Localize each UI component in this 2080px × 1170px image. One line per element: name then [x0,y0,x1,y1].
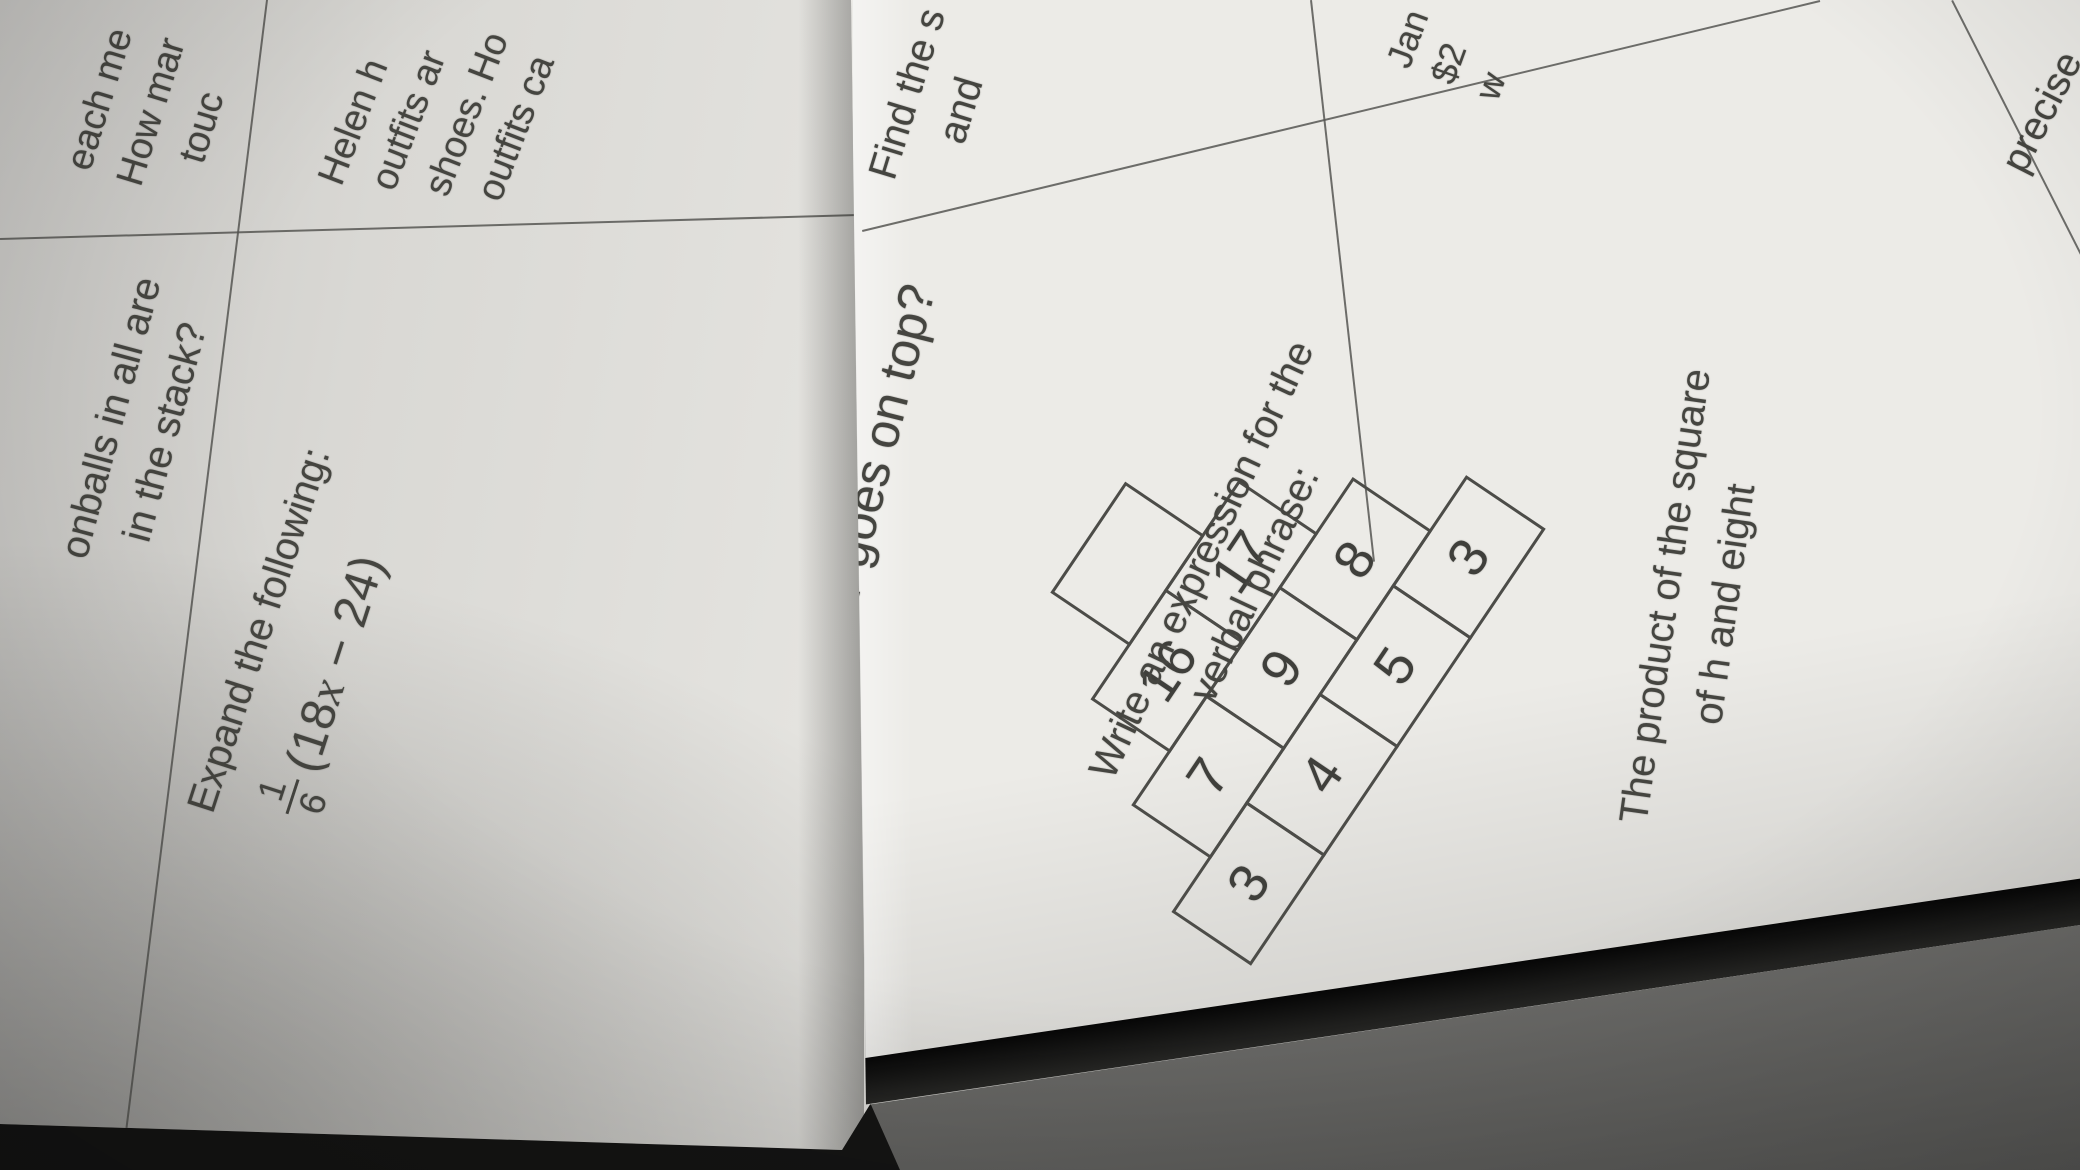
problem-stack-question: onballs in all are in the stack? [47,271,230,579]
problem-helen-fragment: Helen h outfits ar shoes. Ho outfits ca [307,0,570,248]
verbal-phrase-text: The product of the square of h and eight [1604,365,1787,835]
expression-suffix: − 24) [305,548,396,688]
fraction-denominator: 6 [289,782,337,825]
fragment-line: precise [1988,42,2080,182]
problem-jan-fragment: Jan $2 w [1376,4,1528,107]
problem-fragment-top: each me How mar touc [53,16,250,208]
photo-of-worksheets: each me How mar touc onballs in all are … [0,0,2080,1170]
problem-expand: Expand the following: 1 6 (18x − 24) [173,441,436,850]
footer-fragment-precise: precise [1988,42,2080,182]
